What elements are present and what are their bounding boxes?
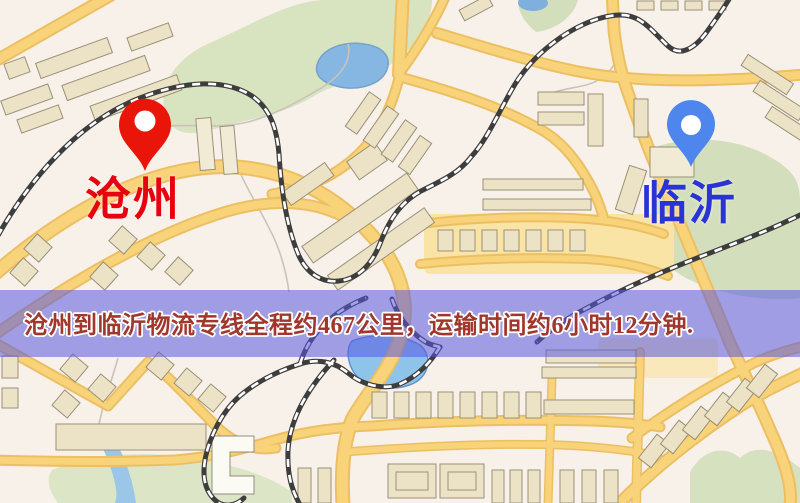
map-canvas[interactable]: 沧州 临沂 沧州到临沂物流专线全程约467公里，运输时间约6小时12分钟.: [0, 0, 800, 503]
map-art: [0, 0, 800, 503]
route-info-banner: 沧州到临沂物流专线全程约467公里，运输时间约6小时12分钟.: [0, 290, 800, 357]
origin-pin-icon[interactable]: [119, 99, 171, 171]
route-info-text: 沧州到临沂物流专线全程约467公里，运输时间约6小时12分钟.: [24, 311, 694, 339]
origin-label: 沧州: [85, 177, 181, 223]
route-info-text-art: 沧州到临沂物流专线全程约467公里，运输时间约6小时12分钟.: [0, 290, 800, 357]
destination-label: 临沂: [641, 181, 737, 227]
